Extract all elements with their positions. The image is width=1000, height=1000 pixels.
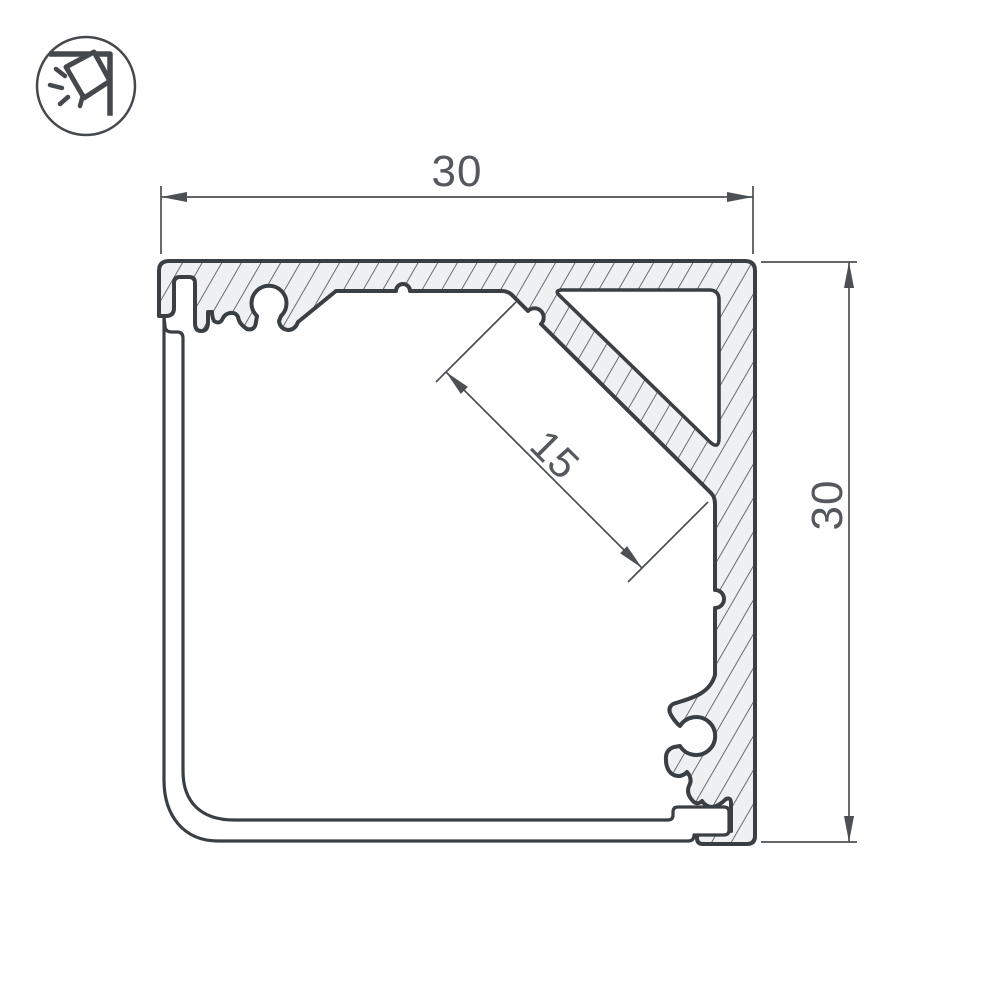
- dimension-label-top-width: 30: [432, 147, 483, 196]
- dimension-label-right-height: 30: [803, 480, 852, 531]
- icon-light-ray: [60, 97, 68, 104]
- profile-technical-drawing: 30 30 15: [0, 0, 1000, 1000]
- arrowhead: [844, 816, 854, 842]
- arrowhead: [161, 192, 187, 202]
- dimension-label-diagonal-channel: 15: [521, 421, 589, 489]
- arrowhead: [727, 192, 753, 202]
- icon-light-ray: [50, 85, 62, 88]
- top-width-dimension: 30: [161, 147, 753, 254]
- icon-light-ray: [56, 69, 65, 76]
- right-height-dimension: 30: [761, 262, 857, 842]
- arrowhead: [844, 262, 854, 288]
- extension-line: [628, 502, 708, 582]
- icon-light-ray: [80, 95, 83, 106]
- profile-cross-section: [159, 261, 755, 844]
- icon-lamp: [66, 52, 110, 98]
- extension-line: [436, 302, 516, 382]
- corner-light-icon: [37, 37, 135, 135]
- drawing-page: 30 30 15: [0, 0, 1000, 1000]
